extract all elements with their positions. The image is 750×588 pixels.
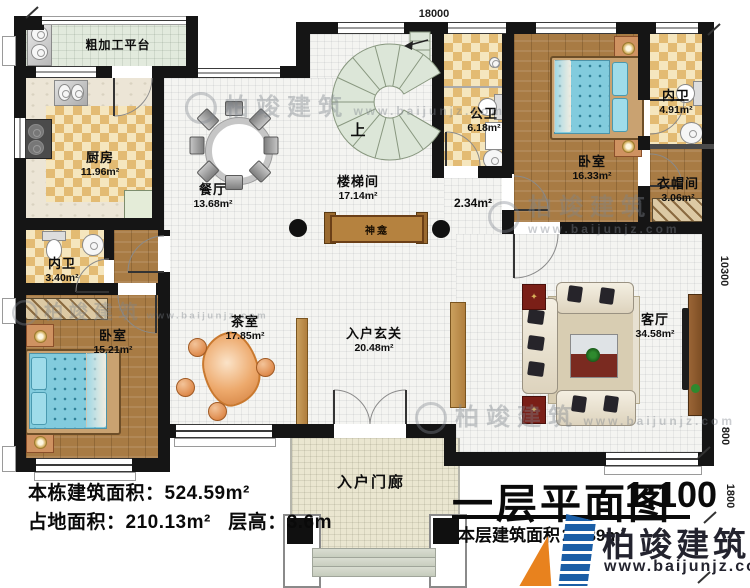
dim-right-800: 800 (719, 411, 731, 461)
window-sill (2, 298, 16, 324)
brand-logo: 柏竣建筑 www.baijunjz.com (518, 512, 750, 588)
room-label-stairwell: 楼梯间 17.14m² (313, 174, 403, 202)
plan-scale: 1:100 (625, 474, 717, 516)
room-label-living: 客厅 34.58m² (610, 312, 700, 340)
spiral-staircase (332, 32, 440, 160)
room-label-foyer: 入户玄关 20.48m² (314, 326, 434, 354)
room-label-dining: 餐厅 13.68m² (168, 182, 258, 210)
floor-plan-canvas: 神龛 (0, 0, 750, 588)
room-label-bedroom-right: 卧室 16.33m² (547, 154, 637, 182)
stat-building-area: 本栋建筑面积：524.59m² (28, 480, 332, 509)
window-sill (2, 446, 16, 472)
room-label-tea-room: 茶室 17.85m² (200, 314, 290, 342)
room-label-kitchen: 厨房 11.96m² (55, 150, 145, 178)
stat-footprint-height: 占地面积：210.13m² 层高：3.6m (28, 509, 332, 538)
dim-right-10300: 10300 (718, 241, 730, 301)
dim-top-18000: 18000 (404, 8, 464, 20)
brand-logo-icon (548, 514, 596, 586)
room-label-rough-platform: 粗加工平台 (58, 38, 178, 52)
window-sill (174, 438, 276, 447)
brand-logo-icon (519, 536, 564, 586)
room-label-ensuite-right: 内卫 4.91m² (631, 88, 721, 116)
label-hall-small-area: 2.34m² (433, 196, 513, 210)
room-label-bedroom-left: 卧室 15.21m² (68, 328, 158, 356)
window-sill (2, 36, 16, 66)
room-label-ensuite-left: 内卫 3.40m² (17, 256, 107, 284)
room-label-cloakroom: 衣帽间 3.06m² (633, 176, 723, 204)
building-stats: 本栋建筑面积：524.59m² 占地面积：210.13m² 层高：3.6m (28, 480, 332, 537)
stair-up-label: 上 (346, 122, 370, 140)
brand-url: www.baijunjz.com (604, 558, 750, 576)
room-label-public-bath: 公卫 6.18m² (439, 106, 529, 134)
